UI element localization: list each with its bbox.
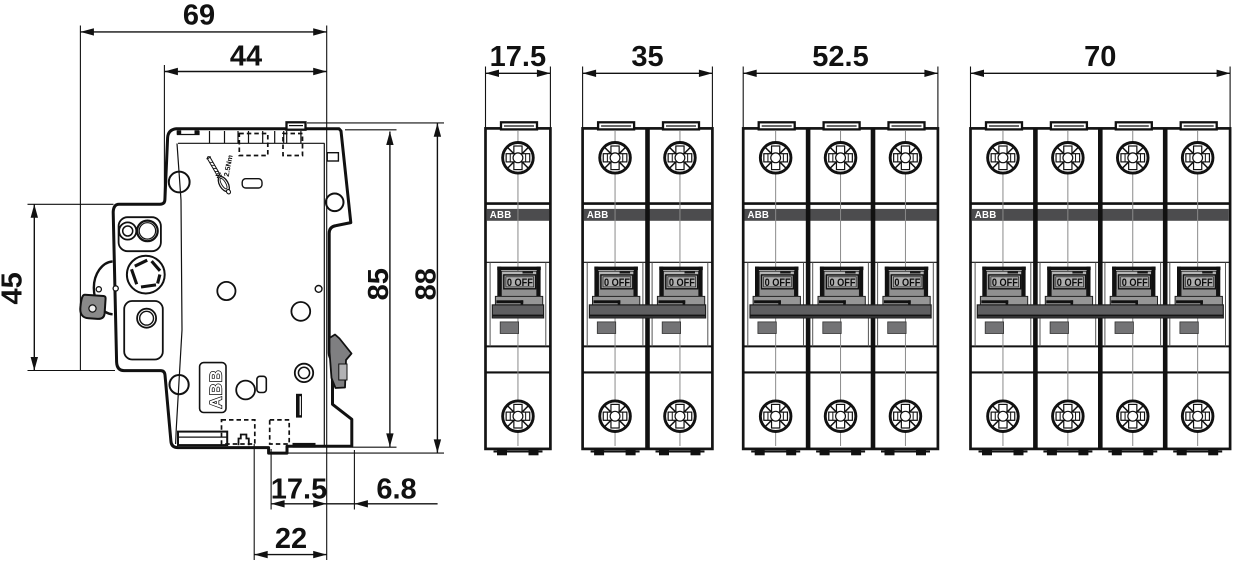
svg-text:69: 69 <box>183 0 215 32</box>
svg-text:17.5: 17.5 <box>271 473 327 505</box>
svg-text:22: 22 <box>275 523 307 555</box>
svg-text:ABB: ABB <box>975 210 997 221</box>
svg-text:70: 70 <box>1084 41 1116 73</box>
svg-text:44: 44 <box>230 40 262 72</box>
svg-text:2.5Nm: 2.5Nm <box>222 154 235 178</box>
svg-text:6.8: 6.8 <box>376 473 416 505</box>
svg-text:ABB: ABB <box>587 210 609 221</box>
svg-text:ABB: ABB <box>208 369 226 408</box>
svg-text:52.5: 52.5 <box>812 41 868 73</box>
svg-text:ABB: ABB <box>748 210 770 221</box>
svg-text:35: 35 <box>631 41 663 73</box>
svg-text:45: 45 <box>0 272 29 304</box>
svg-text:ABB: ABB <box>490 210 512 221</box>
svg-text:17.5: 17.5 <box>490 41 546 73</box>
